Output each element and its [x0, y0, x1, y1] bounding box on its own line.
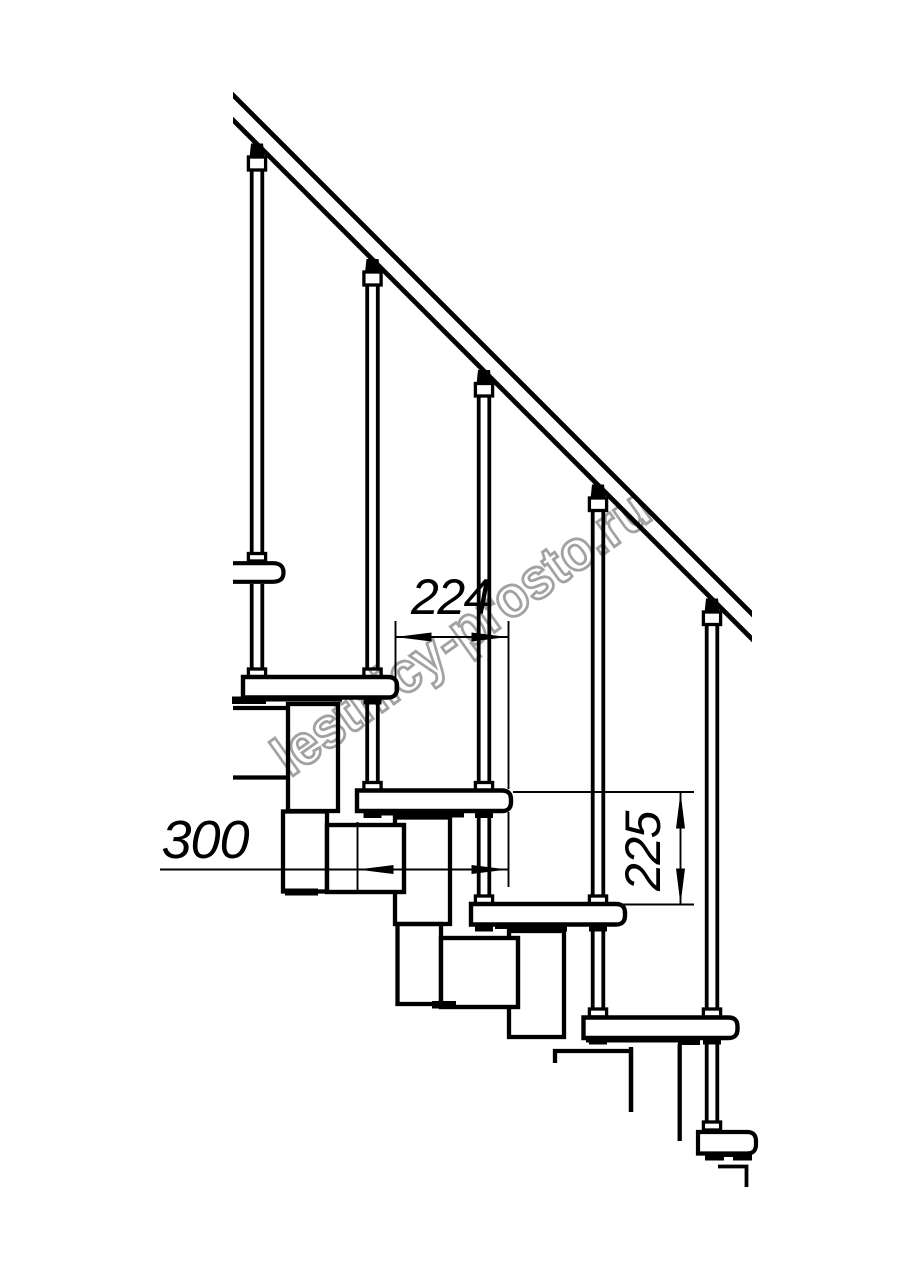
svg-text:225: 225 [615, 810, 671, 892]
svg-text:300: 300 [161, 810, 249, 870]
svg-text:224: 224 [410, 569, 490, 625]
